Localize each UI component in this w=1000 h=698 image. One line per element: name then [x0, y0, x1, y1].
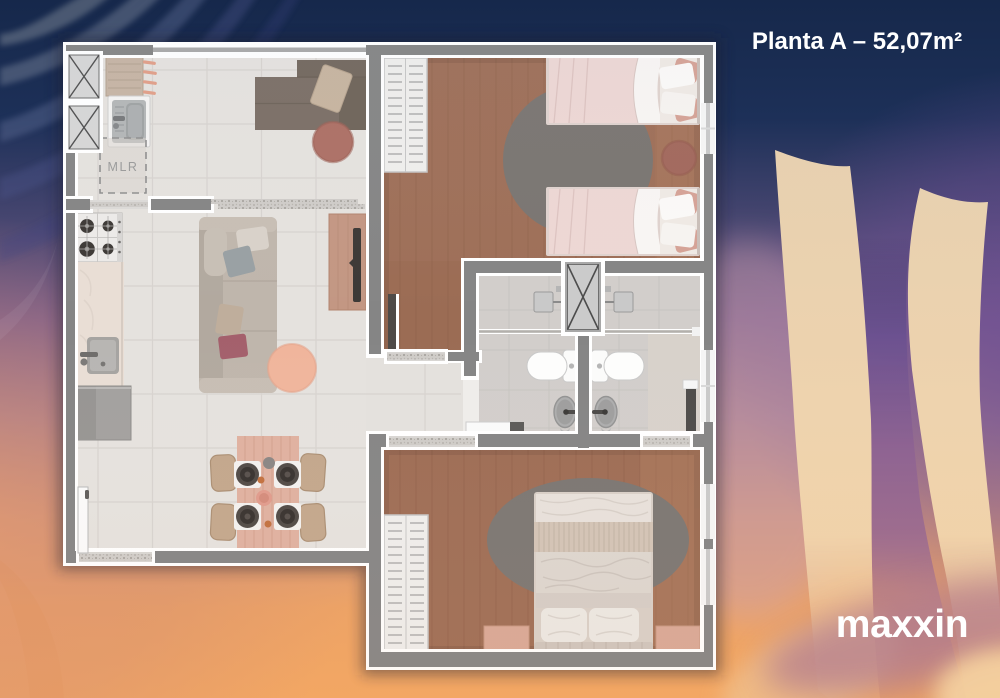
svg-text:Planta A – 52,07m²: Planta A – 52,07m²: [752, 28, 962, 55]
svg-text:maxxin: maxxin: [836, 603, 969, 646]
